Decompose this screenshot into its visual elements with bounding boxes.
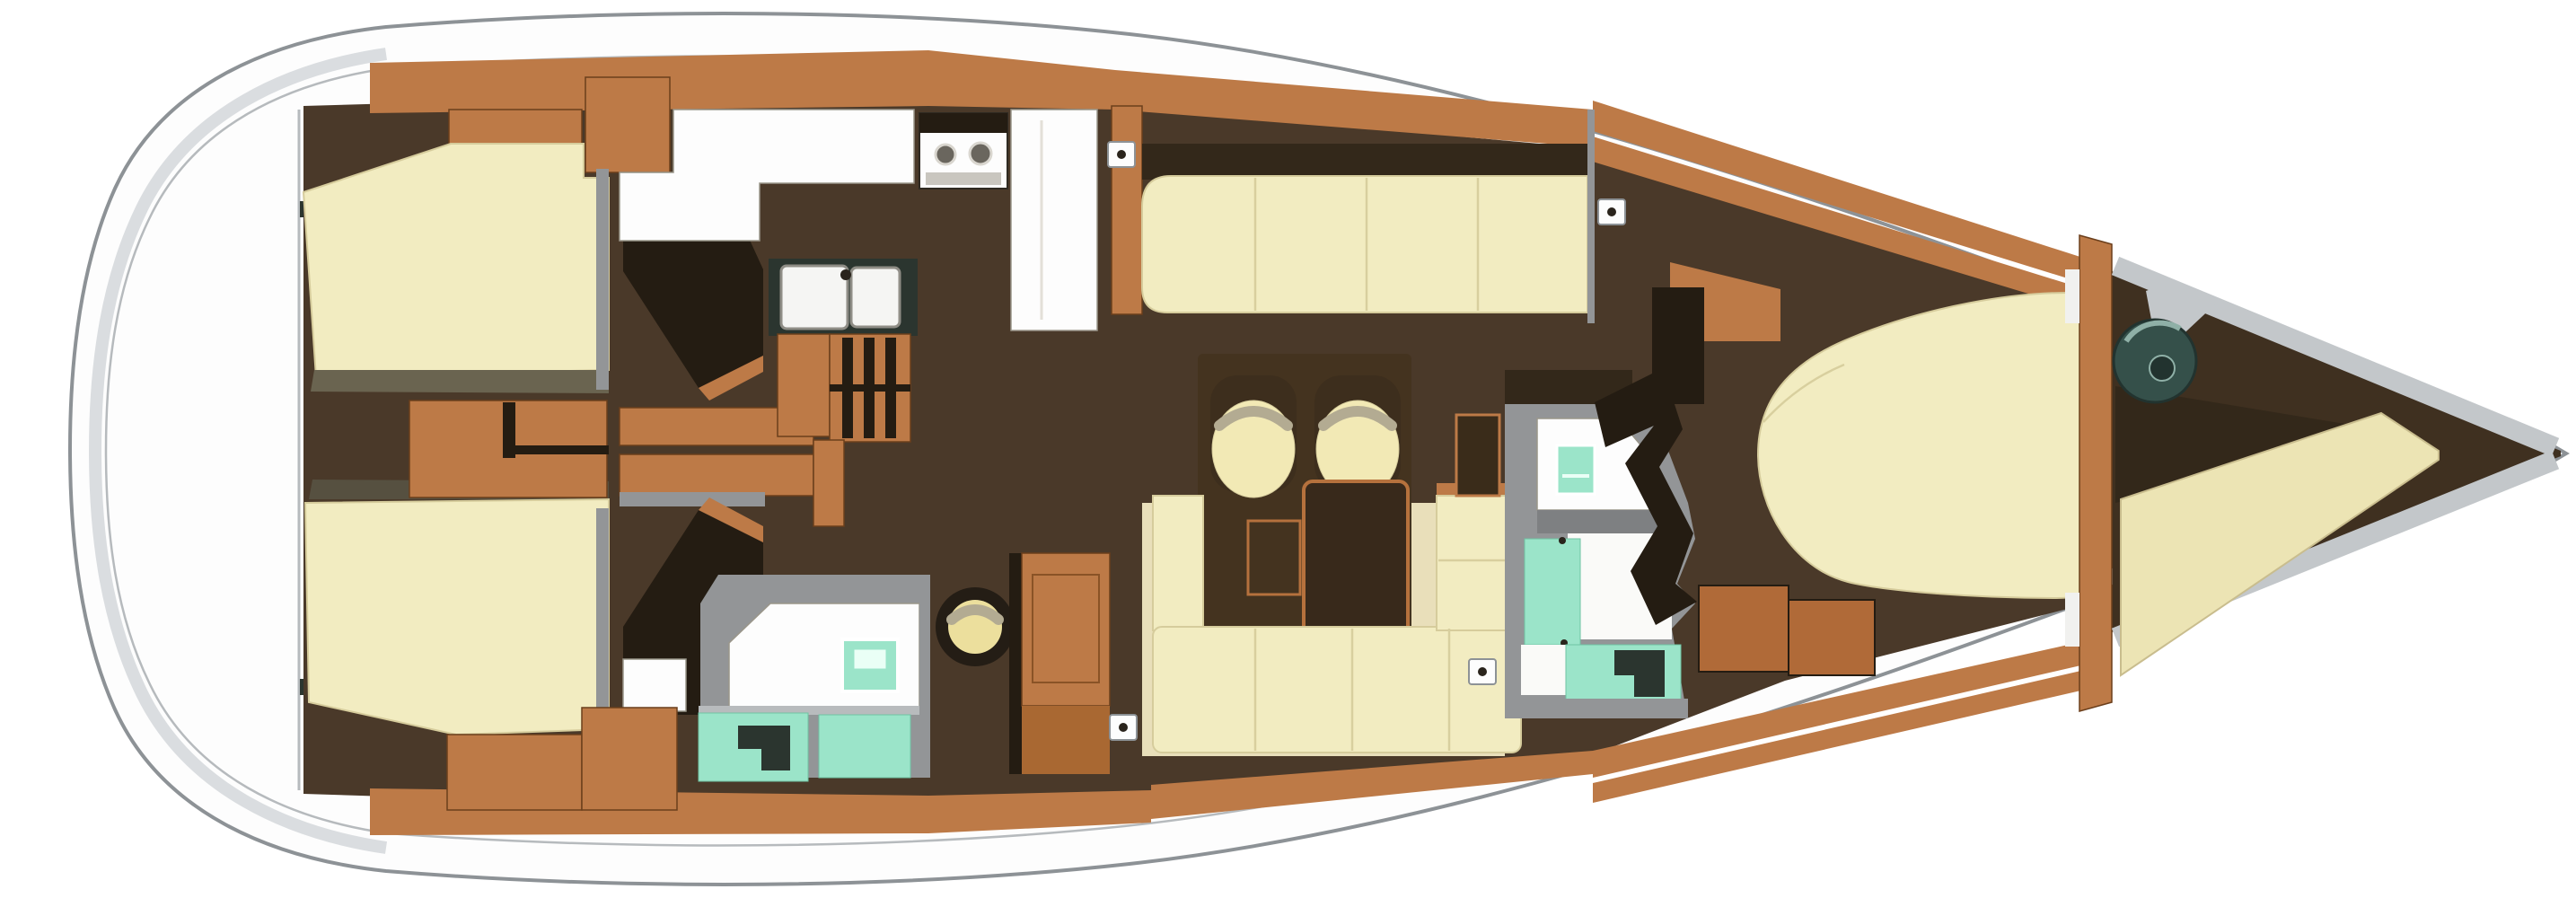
yacht-floor-plan <box>0 0 2576 898</box>
side-table <box>1248 521 1300 594</box>
salon-locker <box>1456 415 1499 496</box>
forward-head-group <box>1505 368 1697 718</box>
forward-toilet-floor-white <box>1521 645 1566 695</box>
forward-head-counter-edge <box>1537 510 1657 533</box>
cabin-step-2 <box>1789 600 1875 675</box>
aft-head-partition <box>919 575 930 778</box>
chart-table-slot <box>1009 553 1022 774</box>
step-rail-line <box>830 384 910 392</box>
mast-post <box>813 440 844 526</box>
portlight-1-dot <box>1117 150 1126 159</box>
port-settee <box>1142 176 1587 313</box>
companionway-side-box <box>778 334 830 436</box>
refrigerator-column <box>1011 110 1097 330</box>
cabin-door-locker <box>1652 287 1704 404</box>
shower-hinge-top <box>1559 537 1566 544</box>
bulkhead-white-sliver-bottom <box>2065 593 2079 647</box>
starboard-berth <box>305 499 609 735</box>
stove-burner-left <box>936 145 955 164</box>
forward-shower-stall <box>1525 539 1580 645</box>
starboard-settee-run <box>1153 627 1521 753</box>
wardrobe-white-panel <box>623 659 686 711</box>
drawer-slot-horizontal <box>515 445 609 454</box>
cabin-partition-top <box>596 169 609 390</box>
port-berth-edge <box>311 370 609 393</box>
chart-table-base <box>1022 706 1110 774</box>
stove-burner-right <box>970 143 991 164</box>
salon-fwd-bulkhead <box>1587 110 1595 323</box>
port-berth <box>303 144 609 377</box>
starboard-locker-box-2 <box>582 708 677 810</box>
faucet <box>840 269 851 280</box>
oven-door <box>926 172 1001 185</box>
sink-basin-left <box>781 266 848 329</box>
side-drawer-bar-2 <box>620 454 813 496</box>
forward-bulkhead <box>2079 235 2112 711</box>
floor-plan-canvas <box>0 0 2576 898</box>
aft-head-sink-inner <box>853 648 887 670</box>
forward-head-sink <box>1557 445 1595 494</box>
portlight-4-dot <box>1478 667 1487 676</box>
aft-head-nav-group <box>699 553 1110 781</box>
forward-head-bottom-band <box>1562 699 1688 718</box>
portlight-3-dot <box>1119 723 1128 732</box>
starboard-locker-box-1 <box>447 735 582 810</box>
dining-table <box>1304 481 1408 636</box>
drawer-slot-vertical <box>503 402 515 458</box>
stove-back-rail <box>919 113 1007 133</box>
cabin-step-1 <box>1699 585 1789 672</box>
galley-salon-bulkhead-locker <box>1112 106 1142 314</box>
cabin-partition-bottom <box>596 508 609 729</box>
aft-locker-box-2 <box>585 77 670 172</box>
starboard-settee-left-return <box>1153 496 1203 630</box>
portlight-2-dot <box>1607 207 1616 216</box>
sink-basin-right <box>851 268 900 327</box>
aft-head-teal-panel <box>819 715 910 778</box>
port-settee-backrest <box>1142 144 1587 180</box>
bulkhead-white-sliver-top <box>2065 269 2079 323</box>
cabin-partition-mid <box>620 492 765 506</box>
windlass-drum <box>2150 356 2175 381</box>
